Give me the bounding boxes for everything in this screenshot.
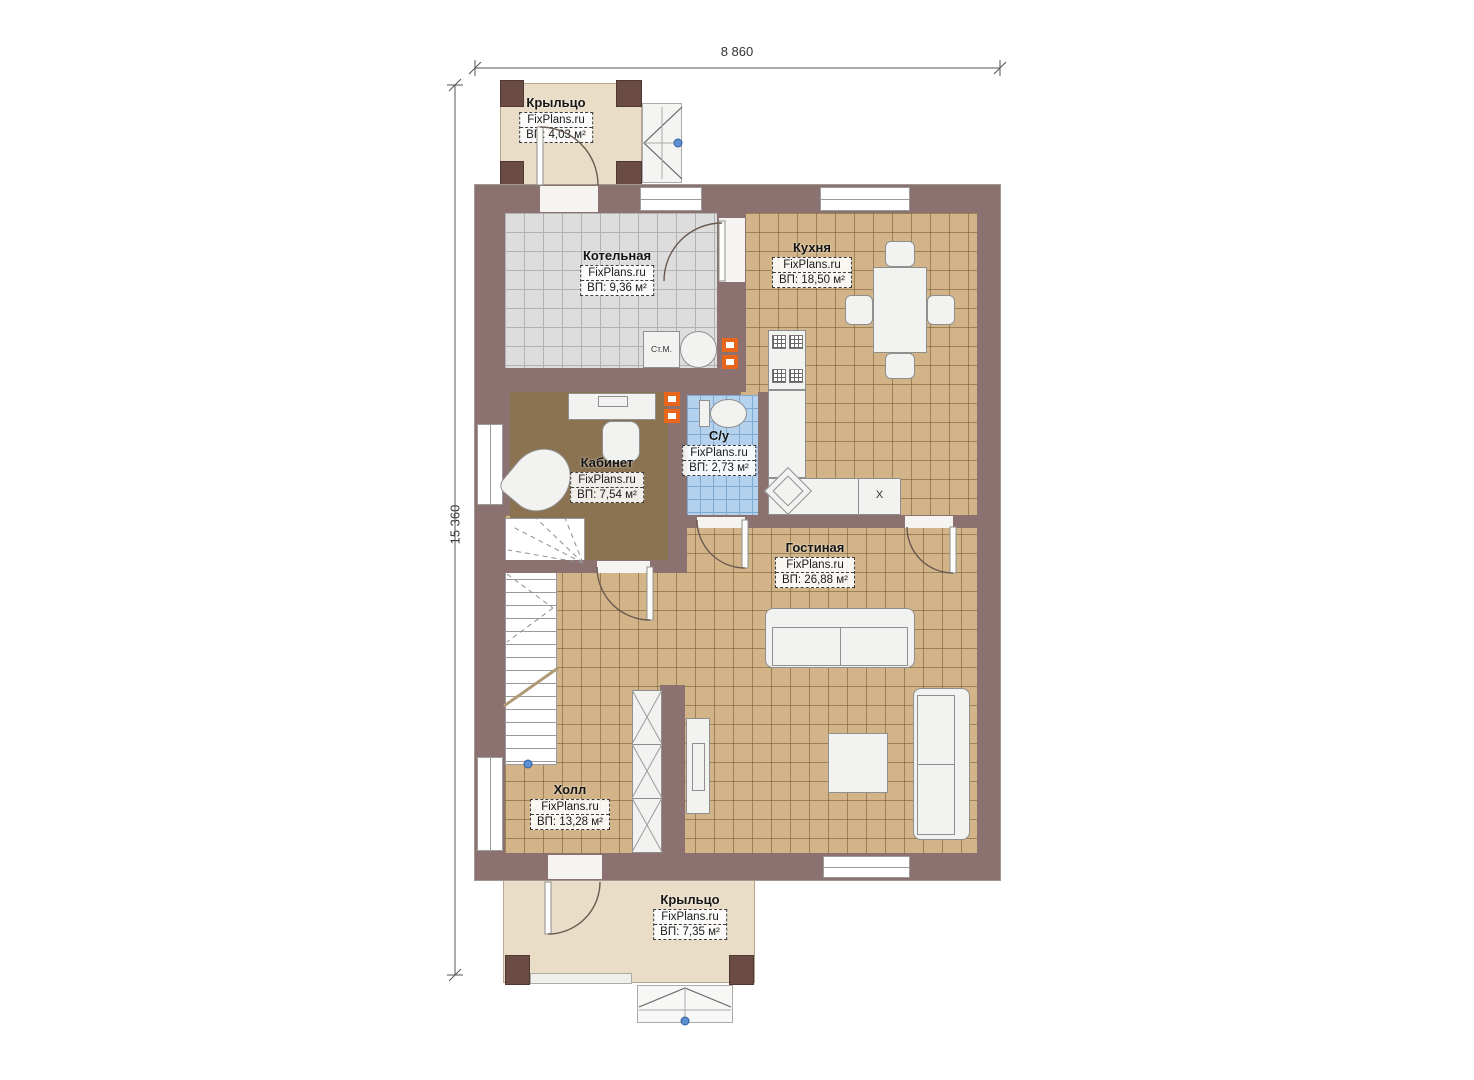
room-name-office: Кабинет xyxy=(570,455,644,470)
coffee-table xyxy=(828,733,888,793)
window-top-kitchen xyxy=(820,187,910,211)
sofa-horizontal-divider xyxy=(840,627,841,666)
stove-burner-1 xyxy=(772,335,786,349)
washing-machine: Ст.М. xyxy=(643,331,680,368)
room-label-hall: Холл FixPlans.ru ВП: 13,28 м² xyxy=(530,782,610,830)
staircase-winder xyxy=(505,518,585,565)
brand-bathroom: FixPlans.ru xyxy=(683,446,755,460)
room-label-office: Кабинет FixPlans.ru ВП: 7,54 м² xyxy=(570,455,644,503)
top-porch-pillar-se xyxy=(616,161,642,186)
brand-boiler: FixPlans.ru xyxy=(581,266,653,280)
dining-chair-top xyxy=(885,241,915,267)
kitchen-sink-basin xyxy=(772,475,803,506)
toilet-bowl xyxy=(710,399,747,428)
area-bathroom: ВП: 2,73 м² xyxy=(683,460,755,475)
radiator-kitchen-a xyxy=(722,338,738,352)
door-opening-bathroom xyxy=(697,517,745,528)
wall-hall-living-stub xyxy=(660,685,685,853)
bottom-porch-steps xyxy=(637,985,733,1023)
room-name-top-porch: Крыльцо xyxy=(519,95,593,110)
top-porch-pillar-ne xyxy=(616,80,642,107)
brand-office: FixPlans.ru xyxy=(571,473,643,487)
label-box-bottom-porch: FixPlans.ru ВП: 7,35 м² xyxy=(653,909,727,940)
dimension-width-label: 8 860 xyxy=(687,44,787,59)
door-opening-boiler xyxy=(719,218,745,282)
top-porch-pillar-sw xyxy=(500,161,524,186)
area-office: ВП: 7,54 м² xyxy=(571,487,643,502)
staircase-flight xyxy=(505,565,557,765)
stove-burner-2 xyxy=(789,335,803,349)
office-computer xyxy=(598,396,628,407)
bottom-porch-pillar-sw xyxy=(505,955,530,985)
area-living: ВП: 26,88 м² xyxy=(776,572,854,587)
door-opening-office xyxy=(597,561,650,573)
dining-chair-left xyxy=(845,295,873,325)
room-label-bathroom: С/у FixPlans.ru ВП: 2,73 м² xyxy=(682,428,756,476)
area-boiler: ВП: 9,36 м² xyxy=(581,280,653,295)
radiator-bath-b xyxy=(664,409,680,423)
label-box-kitchen: FixPlans.ru ВП: 18,50 м² xyxy=(772,257,852,288)
wall-office-hall xyxy=(497,560,687,573)
stove xyxy=(768,330,806,390)
stove-burner-4 xyxy=(789,369,803,383)
window-top-boiler xyxy=(640,187,702,211)
window-bottom-living xyxy=(823,856,910,878)
room-label-kitchen: Кухня FixPlans.ru ВП: 18,50 м² xyxy=(772,240,852,288)
bottom-porch-pillar-se xyxy=(729,955,754,985)
washing-machine-label: Ст.М. xyxy=(644,344,679,354)
label-box-top-porch: FixPlans.ru ВП: 4,03 м² xyxy=(519,112,593,143)
label-box-living: FixPlans.ru ВП: 26,88 м² xyxy=(775,557,855,588)
room-name-hall: Холл xyxy=(530,782,610,797)
dining-chair-right xyxy=(927,295,955,325)
room-name-bathroom: С/у xyxy=(682,428,756,443)
sofa-vertical-divider xyxy=(917,764,955,765)
area-top-porch: ВП: 4,03 м² xyxy=(520,127,592,142)
sofa-vertical-seat xyxy=(917,695,955,835)
room-label-top-porch: Крыльцо FixPlans.ru ВП: 4,03 м² xyxy=(519,95,593,143)
wardrobe xyxy=(632,690,662,853)
floor-plan-canvas: 8 860 15 360 Ст.М. xyxy=(0,0,1474,1080)
area-kitchen: ВП: 18,50 м² xyxy=(773,272,851,287)
room-name-bottom-porch: Крыльцо xyxy=(653,892,727,907)
fridge-mark-label: X xyxy=(859,489,900,501)
wardrobe-cell-3 xyxy=(633,799,661,852)
wall-bathroom-right xyxy=(758,392,768,518)
door-opening-kitchen-living xyxy=(905,516,953,528)
sofa-horizontal xyxy=(765,608,915,668)
label-box-boiler: FixPlans.ru ВП: 9,36 м² xyxy=(580,265,654,296)
dining-chair-bottom xyxy=(885,353,915,379)
toilet-tank xyxy=(699,400,710,427)
kitchen-fridge-cell: X xyxy=(858,478,901,515)
room-name-living: Гостиная xyxy=(775,540,855,555)
area-bottom-porch: ВП: 7,35 м² xyxy=(654,924,726,939)
top-porch-steps xyxy=(642,103,682,183)
tv-unit xyxy=(686,718,710,814)
room-label-bottom-porch: Крыльцо FixPlans.ru ВП: 7,35 м² xyxy=(653,892,727,940)
room-name-boiler: Котельная xyxy=(580,248,654,263)
door-opening-top-porch xyxy=(540,186,598,212)
label-box-office: FixPlans.ru ВП: 7,54 м² xyxy=(570,472,644,503)
brand-top-porch: FixPlans.ru xyxy=(520,113,592,127)
wall-boiler-office xyxy=(497,368,746,392)
bottom-porch-step-strip xyxy=(530,973,632,984)
tv-unit-inner xyxy=(692,743,705,791)
stove-burner-3 xyxy=(772,369,786,383)
dimension-height-label: 15 360 xyxy=(448,490,463,560)
room-label-boiler: Котельная FixPlans.ru ВП: 9,36 м² xyxy=(580,248,654,296)
radiator-bath-a xyxy=(664,392,680,406)
brand-kitchen: FixPlans.ru xyxy=(773,258,851,272)
window-left-hall xyxy=(477,757,503,851)
window-left-office xyxy=(477,424,503,505)
boiler-tank xyxy=(680,331,717,368)
brand-living: FixPlans.ru xyxy=(776,558,854,572)
wardrobe-cell-1 xyxy=(633,691,661,745)
radiator-kitchen-b xyxy=(722,355,738,369)
brand-bottom-porch: FixPlans.ru xyxy=(654,910,726,924)
brand-hall: FixPlans.ru xyxy=(531,800,609,814)
door-opening-bottom-porch xyxy=(548,855,602,879)
label-box-hall: FixPlans.ru ВП: 13,28 м² xyxy=(530,799,610,830)
wardrobe-cell-2 xyxy=(633,745,661,799)
room-name-kitchen: Кухня xyxy=(772,240,852,255)
label-box-bathroom: FixPlans.ru ВП: 2,73 м² xyxy=(682,445,756,476)
kitchen-counter-vertical xyxy=(768,390,806,478)
room-label-living: Гостиная FixPlans.ru ВП: 26,88 м² xyxy=(775,540,855,588)
area-hall: ВП: 13,28 м² xyxy=(531,814,609,829)
sofa-vertical xyxy=(913,688,970,840)
dining-table xyxy=(873,267,927,353)
